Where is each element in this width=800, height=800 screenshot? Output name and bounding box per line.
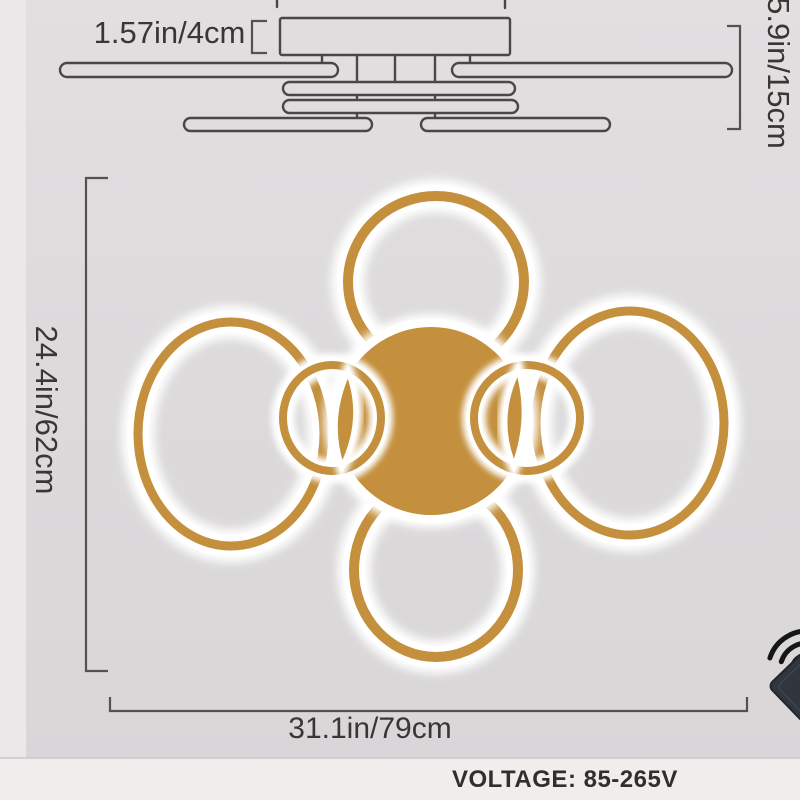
height-label: 5.9in/15cm — [760, 0, 796, 159]
depth-dimension-line — [86, 178, 108, 671]
product-image: 1.57in/4cm 5.9in/15cm 24.4in/62cm 31.1in… — [0, 0, 800, 800]
diagram-canvas — [0, 0, 800, 800]
voltage-label: VOLTAGE: 85-265V — [452, 766, 672, 794]
width-label: 31.1in/79cm — [275, 711, 465, 747]
ring-right-large — [536, 311, 724, 535]
canopy-width-label: 1.57in/4cm — [92, 15, 247, 51]
canopy-width-bracket — [252, 21, 267, 53]
ceiling-lamp-front-view — [138, 196, 724, 657]
lens-left — [335, 372, 355, 467]
canopy-plate — [280, 18, 510, 55]
left-margin — [0, 0, 26, 758]
height-bracket — [727, 26, 740, 129]
remote-control — [768, 653, 800, 755]
depth-label: 24.4in/62cm — [28, 320, 64, 500]
voltage-strip — [0, 758, 800, 800]
lens-right — [505, 370, 524, 466]
width-dimension-line — [110, 697, 747, 711]
